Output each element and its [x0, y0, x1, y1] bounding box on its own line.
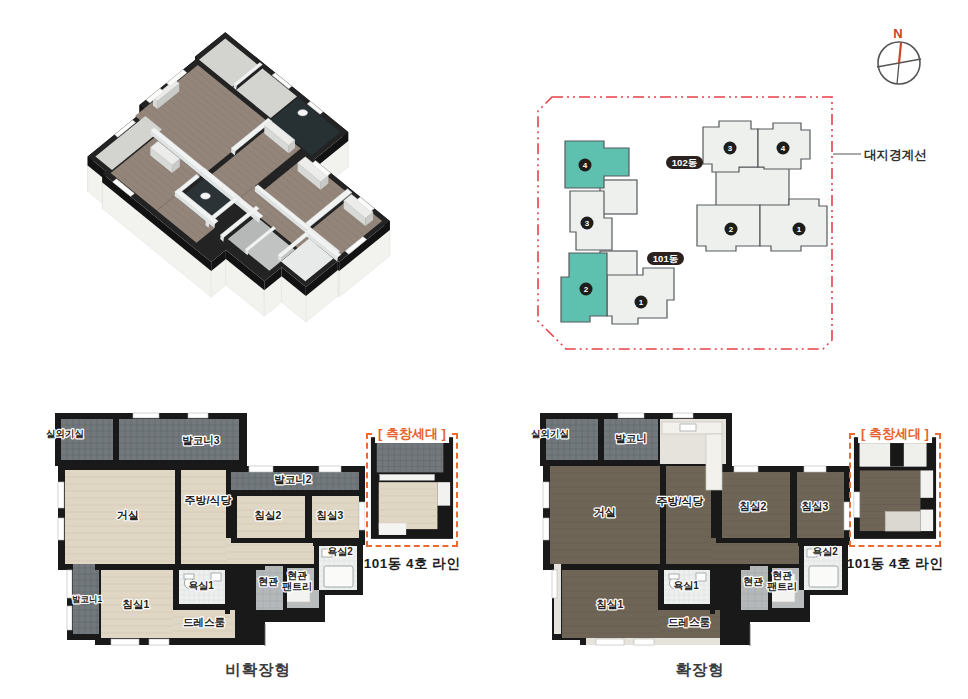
svg-text:침실3: 침실3 [317, 509, 344, 521]
svg-text:침실1: 침실1 [597, 598, 624, 610]
iso-plan [88, 32, 390, 322]
svg-text:실외기실: 실외기실 [531, 428, 569, 439]
svg-text:N: N [893, 26, 902, 41]
svg-text:침실2: 침실2 [740, 500, 767, 512]
line-caption-extended: 101동 4호 라인 [835, 555, 955, 573]
svg-text:대지경계선: 대지경계선 [864, 148, 927, 162]
svg-text:2: 2 [729, 225, 734, 234]
svg-text:4: 4 [781, 144, 786, 153]
svg-text:4: 4 [583, 161, 588, 170]
site-plan: 대지경계선43213421102동101동N [528, 14, 966, 364]
floorplan-2d-extended: 실외기실발코니거실주방/식당침실2침실3욕실2현관현관팬트리욕실1침실1드레스룸 [510, 410, 850, 652]
side-window-mini-plan-basic [368, 435, 456, 545]
svg-text:3: 3 [728, 144, 733, 153]
svg-text:발코니3: 발코니3 [182, 434, 220, 446]
svg-text:1: 1 [639, 298, 644, 307]
svg-text:드레스룸: 드레스룸 [668, 616, 711, 628]
svg-text:1: 1 [797, 225, 802, 234]
building-name-pills: 102동101동 [647, 156, 703, 265]
svg-text:발코니: 발코니 [615, 432, 647, 444]
svg-text:침실2: 침실2 [255, 509, 282, 521]
svg-text:거실: 거실 [117, 509, 139, 521]
svg-text:3: 3 [585, 219, 590, 228]
svg-text:현관: 현관 [258, 576, 278, 587]
floorplan-2d-basic-svg: 실외기실발코니3발코니2거실주방/식당침실2침실3욕실2현관현관팬트리욕실1침실… [25, 410, 365, 652]
svg-text:욕실2: 욕실2 [327, 546, 353, 557]
plan-caption-extended: 확장형 [640, 660, 760, 681]
svg-text:2: 2 [584, 285, 589, 294]
svg-text:욕실1: 욕실1 [673, 580, 699, 591]
floorplan-2d-basic: 실외기실발코니3발코니2거실주방/식당침실2침실3욕실2현관현관팬트리욕실1침실… [25, 410, 365, 652]
plan-caption-basic: 비확장형 [188, 660, 328, 681]
side-window-box-extended: [ 측창세대 ] [849, 433, 941, 547]
svg-text:발코니1: 발코니1 [72, 594, 103, 604]
svg-text:101동: 101동 [653, 253, 679, 264]
plan-rooms: 실외기실발코니3발코니2거실주방/식당침실2침실3욕실2현관현관팬트리욕실1침실… [46, 413, 365, 646]
svg-text:거실: 거실 [594, 506, 616, 518]
svg-text:발코니2: 발코니2 [274, 473, 312, 485]
side-window-box-title: [ 측창세대 ] [375, 425, 449, 443]
mini-plan [854, 437, 936, 539]
svg-text:현관: 현관 [743, 576, 763, 587]
plan-rooms: 실외기실발코니거실주방/식당침실2침실3욕실2현관현관팬트리욕실1침실1드레스룸 [531, 413, 850, 646]
compass: N [877, 26, 921, 84]
svg-text:주방/식당: 주방/식당 [656, 495, 703, 507]
svg-text:팬트리: 팬트리 [282, 581, 312, 592]
isometric-floorplan-3d [50, 8, 450, 370]
svg-text:현관: 현관 [772, 570, 792, 581]
side-window-box-title: [ 측창세대 ] [858, 425, 932, 443]
svg-text:침실3: 침실3 [802, 500, 829, 512]
line-caption-basic: 101동 4호 라인 [352, 555, 472, 573]
svg-text:드레스룸: 드레스룸 [183, 616, 226, 628]
svg-text:실외기실: 실외기실 [46, 428, 84, 439]
svg-text:침실1: 침실1 [123, 598, 150, 610]
building-102: 3421 [697, 121, 827, 251]
svg-text:주방/식당: 주방/식당 [184, 494, 231, 506]
site-plan-svg: 대지경계선43213421102동101동N [528, 14, 966, 364]
svg-text:현관: 현관 [287, 570, 307, 581]
svg-text:욕실1: 욕실1 [188, 580, 214, 591]
side-window-box-basic: [ 측창세대 ] [366, 433, 458, 547]
isometric-floorplan-svg [50, 8, 450, 370]
svg-text:102동: 102동 [672, 157, 698, 168]
svg-text:팬트리: 팬트리 [767, 581, 797, 592]
floorplan-2d-extended-svg: 실외기실발코니거실주방/식당침실2침실3욕실2현관현관팬트리욕실1침실1드레스룸 [510, 410, 850, 652]
building-101: 4321 [561, 141, 674, 324]
mini-plan [371, 437, 453, 539]
floorplan-page: 대지경계선43213421102동101동N 실외기실발코니3발코니2거실주방/… [0, 0, 968, 699]
side-window-mini-plan-extended [851, 435, 939, 545]
